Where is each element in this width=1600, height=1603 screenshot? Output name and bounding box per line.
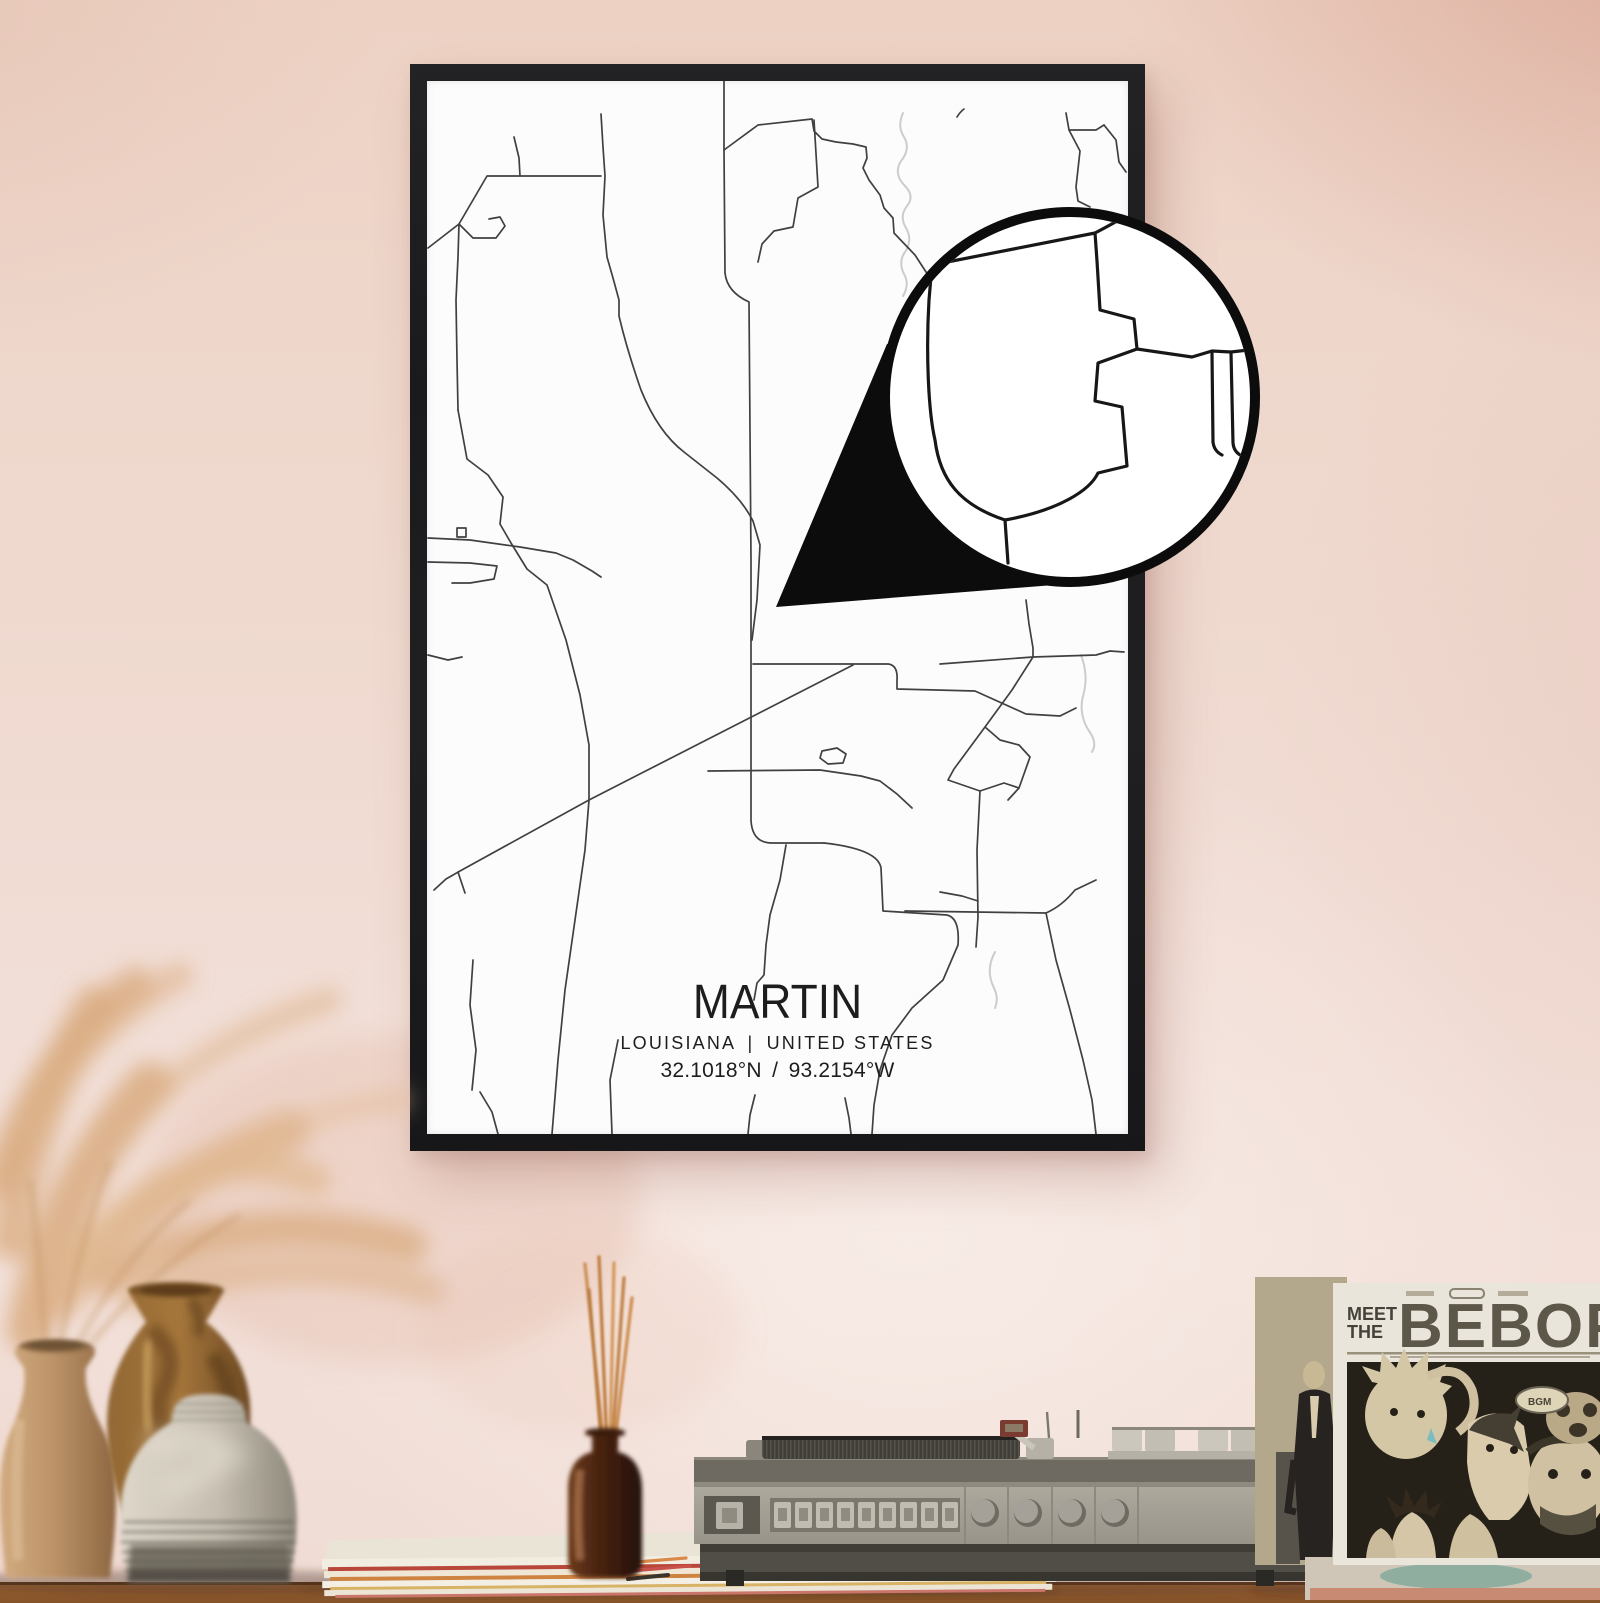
svg-text:THE: THE bbox=[1347, 1322, 1383, 1342]
svg-text:MEET: MEET bbox=[1347, 1304, 1397, 1324]
svg-text:BEBOP: BEBOP bbox=[1398, 1292, 1600, 1361]
svg-text:BGM: BGM bbox=[1528, 1397, 1551, 1408]
